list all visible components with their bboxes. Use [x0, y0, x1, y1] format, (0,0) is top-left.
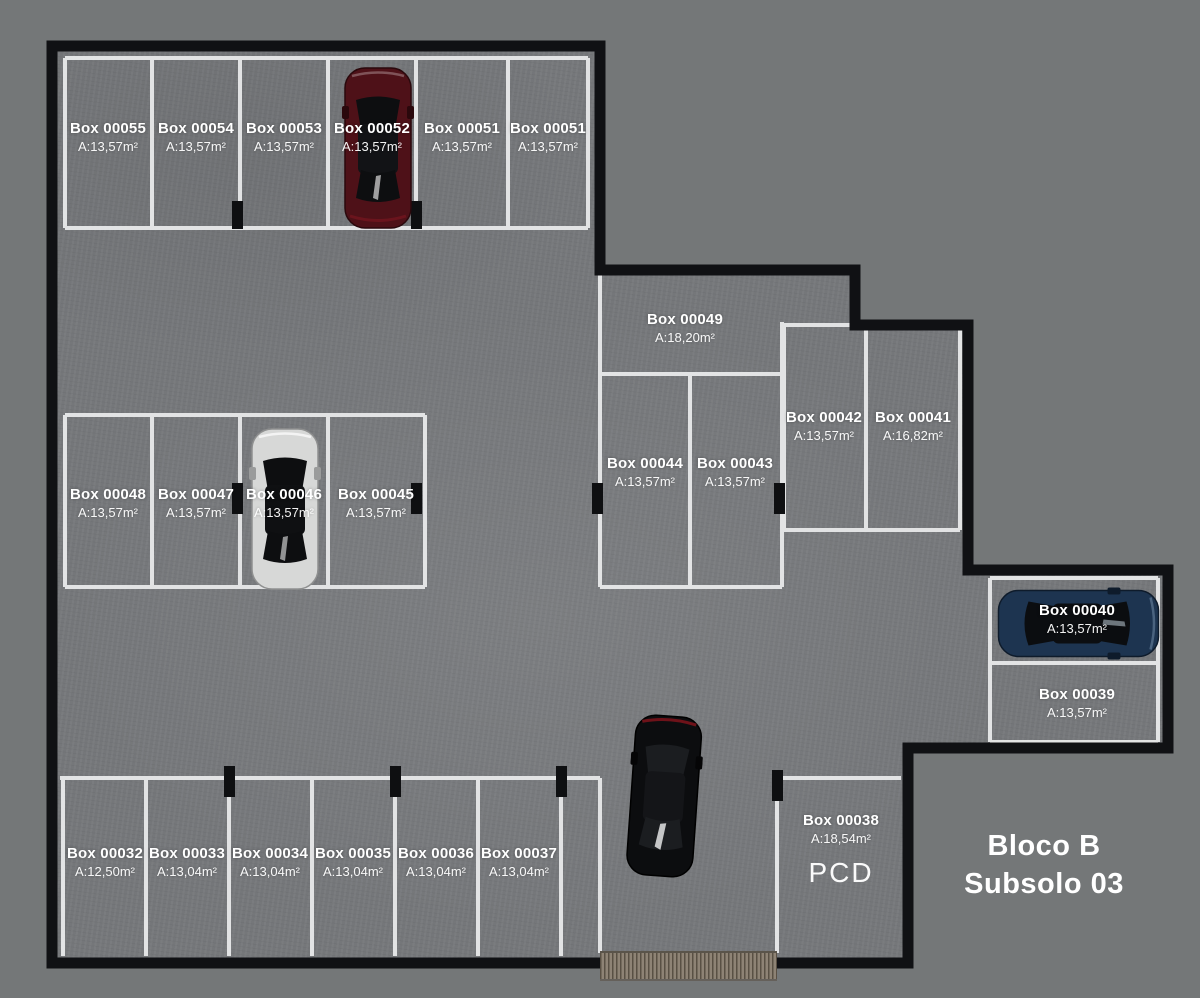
stall-label-box-00053: Box 00053A:13,57m²	[246, 120, 322, 155]
stall-label-box-00041: Box 00041A:16,82m²	[875, 409, 951, 444]
stall-label-box-00047: Box 00047A:13,57m²	[158, 486, 234, 521]
stall-label-box-00051-a: Box 00051A:13,57m²	[424, 120, 500, 155]
stall-label-box-00035: Box 00035A:13,04m²	[315, 845, 391, 880]
plan-title-block: Bloco B	[964, 827, 1124, 865]
stall-label-box-00054: Box 00054A:13,57m²	[158, 120, 234, 155]
entrance-ramp	[600, 951, 777, 981]
stall-label-box-00052: Box 00052A:13,57m²	[334, 120, 410, 155]
parking-floorplan: Box 00055A:13,57m² Box 00054A:13,57m² Bo…	[0, 0, 1200, 998]
stall-label-box-00039: Box 00039A:13,57m²	[1039, 686, 1115, 721]
stall-label-box-00046: Box 00046A:13,57m²	[246, 486, 322, 521]
plan-title: Bloco B Subsolo 03	[964, 827, 1124, 903]
stall-label-box-00049: Box 00049A:18,20m²	[647, 311, 723, 346]
stall-label-box-00038: Box 00038 A:18,54m² PCD	[803, 812, 879, 890]
stall-label-box-00043: Box 00043A:13,57m²	[697, 455, 773, 490]
stall-label-box-00032: Box 00032A:12,50m²	[67, 845, 143, 880]
stall-label-box-00033: Box 00033A:13,04m²	[149, 845, 225, 880]
stall-label-box-00040: Box 00040A:13,57m²	[1039, 602, 1115, 637]
stall-label-box-00037: Box 00037A:13,04m²	[481, 845, 557, 880]
black-car	[622, 712, 706, 886]
stall-label-box-00042: Box 00042A:13,57m²	[786, 409, 862, 444]
stall-label-box-00034: Box 00034A:13,04m²	[232, 845, 308, 880]
stall-label-box-00048: Box 00048A:13,57m²	[70, 486, 146, 521]
stall-label-box-00044: Box 00044A:13,57m²	[607, 455, 683, 490]
plan-title-level: Subsolo 03	[964, 865, 1124, 903]
stall-label-box-00055: Box 00055A:13,57m²	[70, 120, 146, 155]
pcd-badge: PCD	[803, 856, 879, 890]
stall-label-box-00045: Box 00045A:13,57m²	[338, 486, 414, 521]
stall-label-box-00051-b: Box 00051A:13,57m²	[510, 120, 586, 155]
stall-label-box-00036: Box 00036A:13,04m²	[398, 845, 474, 880]
